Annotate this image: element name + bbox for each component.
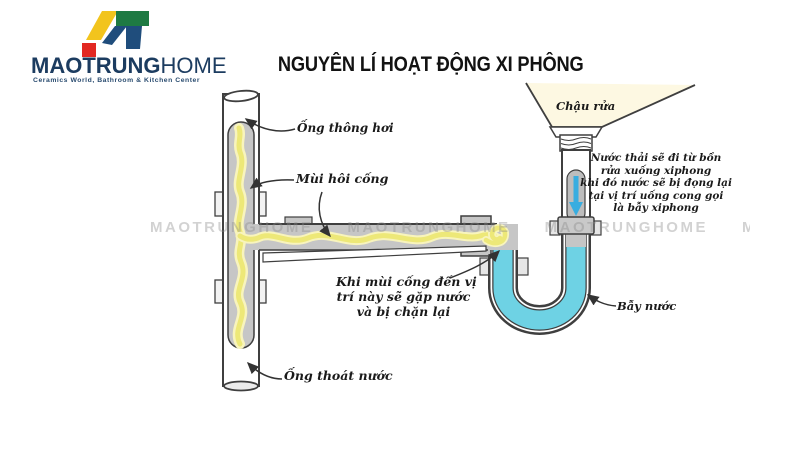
note-line: rửa xuống xiphong [580, 165, 732, 178]
watermark-text: MAOTRUNGHOME [150, 219, 313, 236]
note-line: Nước thải sẽ đi từ bồn [580, 152, 732, 165]
label-vent-pipe: Ống thông hơi [297, 121, 394, 135]
label-sewer-smell: Mùi hôi cống [296, 171, 388, 186]
note-smell-blocked: Khi mùi cống đến vị trí này sẽ gặp nước … [336, 274, 471, 319]
siphon-infographic: MAOTRUNGHOME Ceramics World, Bathroom & … [0, 0, 800, 450]
watermark-text: MAOTRUNGHOME [347, 219, 510, 236]
note-line: là bẫy xiphong [580, 202, 732, 215]
water-trap-arrow [588, 295, 616, 306]
note-line: tại vị trí uống cong gọi [580, 190, 732, 203]
note-line: trí này sẽ gặp nước [336, 289, 471, 304]
sink-basin [526, 83, 695, 151]
label-sink: Chậu rửa [556, 99, 615, 113]
note-line: khi đó nước sẽ bị đọng lại [580, 177, 732, 190]
note-wastewater: Nước thải sẽ đi từ bồn rửa xuống xiphong… [580, 152, 732, 215]
watermark-text: MAOTRUNGHOME [545, 219, 708, 236]
watermark-text: MAOTRUNGHOME [742, 219, 750, 236]
watermark: MAOTRUNGHOMEMAOTRUNGHOMEMAOTRUNGHOMEMAOT… [150, 219, 750, 236]
note-line: Khi mùi cống đến vị [336, 274, 471, 289]
note-line: và bị chặn lại [336, 304, 471, 319]
trap-nut-ear [517, 258, 528, 275]
label-water-trap: Bẫy nước [617, 299, 676, 313]
label-drain-pipe: Ống thoát nước [284, 368, 393, 383]
